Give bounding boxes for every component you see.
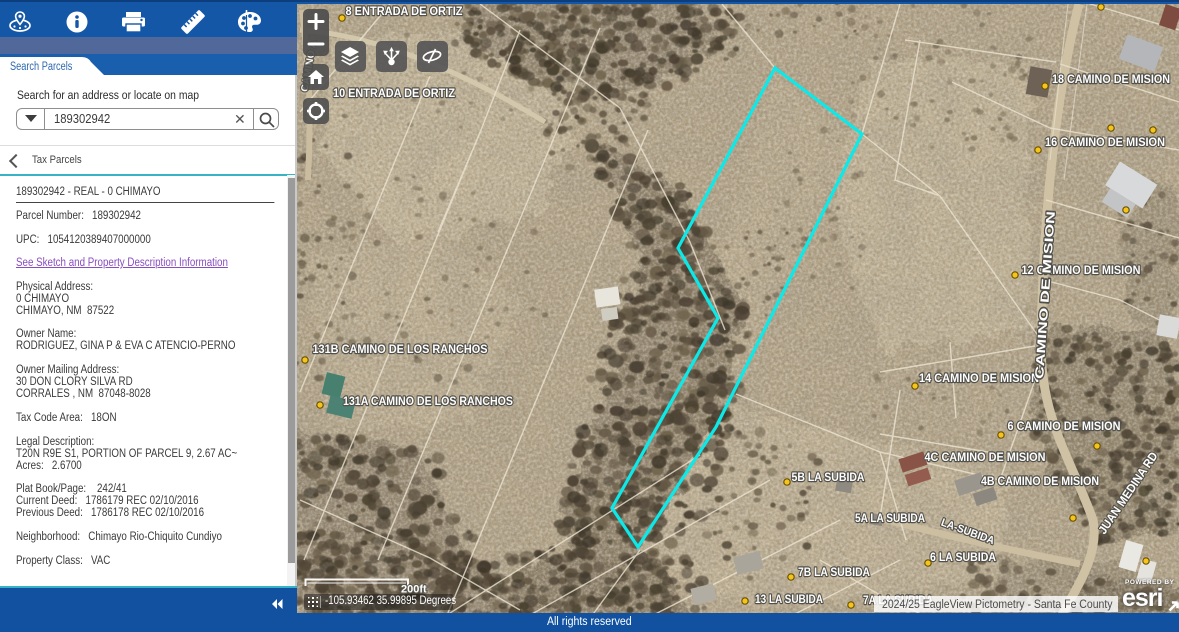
svg-text:131B CAMINO DE LOS RANCHOS: 131B CAMINO DE LOS RANCHOS <box>313 342 488 356</box>
svg-text:131A CAMINO DE LOS RANCHOS: 131A CAMINO DE LOS RANCHOS <box>343 394 513 408</box>
svg-text:6 LA SUBIDA: 6 LA SUBIDA <box>930 550 996 564</box>
svg-text:4B CAMINO DE MISION: 4B CAMINO DE MISION <box>981 474 1099 488</box>
svg-text:5A LA SUBIDA: 5A LA SUBIDA <box>855 511 925 525</box>
svg-text:16 CAMINO DE MISION: 16 CAMINO DE MISION <box>1045 135 1165 149</box>
svg-text:18 CAMINO DE MISION: 18 CAMINO DE MISION <box>1052 72 1170 86</box>
svg-text:5B LA SUBIDA: 5B LA SUBIDA <box>792 470 865 484</box>
svg-text:7B LA SUBIDA: 7B LA SUBIDA <box>798 565 870 579</box>
svg-text:13 LA SUBIDA: 13 LA SUBIDA <box>755 592 823 606</box>
svg-text:14 CAMINO DE MISION: 14 CAMINO DE MISION <box>919 371 1039 385</box>
svg-text:4C CAMINO DE MISION: 4C CAMINO DE MISION <box>925 450 1046 464</box>
svg-text:8 ENTRADA DE ORTIZ: 8 ENTRADA DE ORTIZ <box>346 4 463 18</box>
svg-text:10 ENTRADA DE ORTIZ: 10 ENTRADA DE ORTIZ <box>333 86 455 100</box>
svg-text:6 CAMINO DE MISION: 6 CAMINO DE MISION <box>1008 419 1121 433</box>
